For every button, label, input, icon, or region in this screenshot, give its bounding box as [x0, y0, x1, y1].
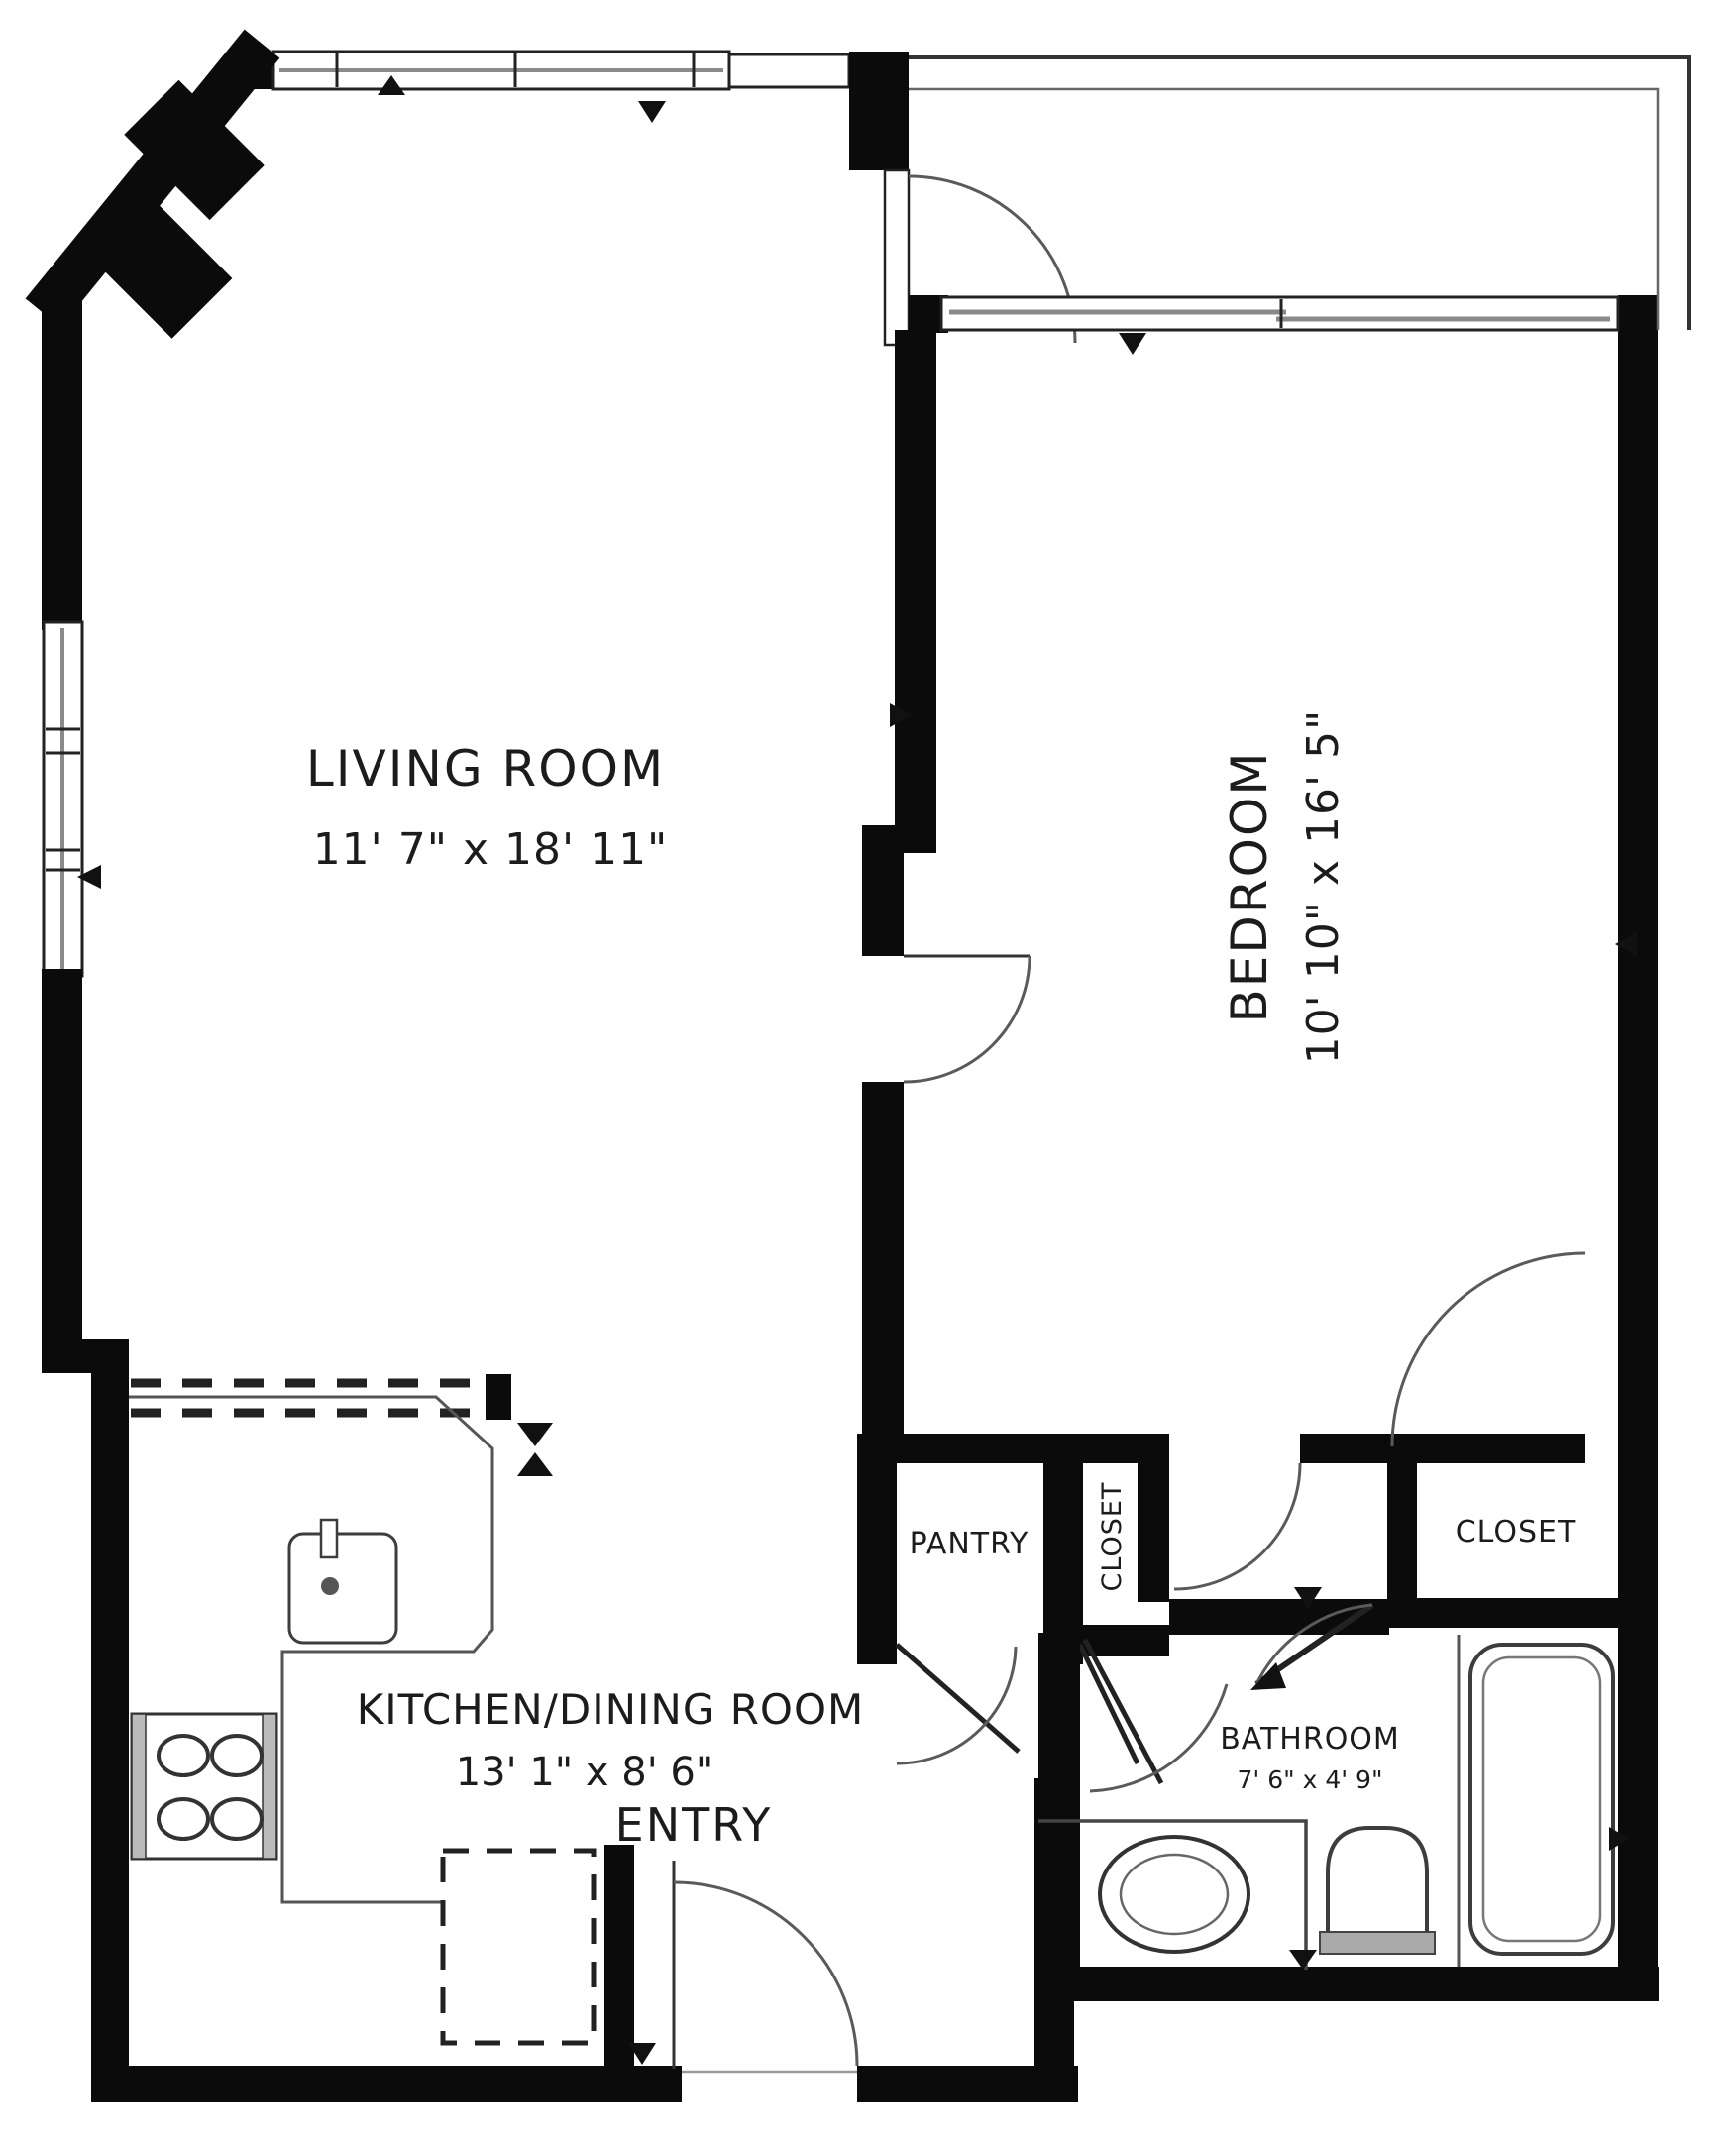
- closet-hall-label: CLOSET: [1097, 1482, 1128, 1592]
- left-window: [44, 622, 82, 976]
- wall-left-lower: [42, 969, 82, 1347]
- stove-rail: [263, 1714, 276, 1859]
- stove-rail: [132, 1714, 146, 1859]
- burner-icon: [159, 1799, 208, 1839]
- balcony-door-leaf: [885, 170, 909, 345]
- stove: [132, 1714, 276, 1859]
- wall-right: [1618, 295, 1658, 2001]
- wall-bath-left: [1038, 1633, 1080, 1970]
- toilet-base: [1320, 1932, 1435, 1954]
- wall-divider-upper: [895, 330, 936, 825]
- faucet-icon: [321, 1520, 337, 1557]
- wall-seg: [857, 1434, 1169, 1463]
- bathroom-dims: 7' 6" x 4' 9": [1238, 1765, 1383, 1794]
- burner-icon: [212, 1736, 262, 1775]
- wall-divider-jog: [862, 825, 936, 853]
- floor-plan-canvas: LIVING ROOM 11' 7" x 18' 11" BEDROOM 10'…: [0, 0, 1736, 2136]
- wall-entry-stub: [604, 1845, 634, 2102]
- wall-closet2-bottom: [1387, 1598, 1658, 1628]
- cabinet-end-post: [486, 1374, 511, 1420]
- bathroom-label: BATHROOM: [1220, 1722, 1400, 1757]
- burner-icon: [212, 1799, 262, 1839]
- living-room-label: LIVING ROOM: [306, 740, 665, 798]
- wall-seg: [1300, 1434, 1585, 1463]
- wall-divider-lower: [862, 1082, 904, 1437]
- bathtub: [1470, 1645, 1613, 1954]
- wall-divider-mid: [862, 853, 904, 956]
- wall-top-plain-band: [729, 54, 849, 87]
- wall-closet1-bottom: [1083, 1625, 1169, 1656]
- wall-left-upper: [42, 285, 82, 630]
- wall-closet1-right: [1138, 1463, 1169, 1602]
- stove-body: [132, 1714, 276, 1859]
- bedroom-top-wall: [909, 295, 1618, 333]
- wall-left-bottom: [91, 1367, 129, 2102]
- toilet: [1328, 1828, 1427, 1940]
- wall-bath-bottom: [1034, 1967, 1659, 2001]
- kitchen-label: KITCHEN/DINING ROOM: [357, 1685, 865, 1734]
- top-window: [273, 52, 729, 89]
- wall-bottom-left: [91, 2066, 682, 2102]
- floor-plan: LIVING ROOM 11' 7" x 18' 11" BEDROOM 10'…: [0, 0, 1736, 2136]
- sink-drain-icon: [321, 1577, 339, 1595]
- bedroom-label: BEDROOM: [1221, 751, 1278, 1023]
- burner-icon: [159, 1736, 208, 1775]
- closet-bedroom-label: CLOSET: [1456, 1515, 1577, 1549]
- closet-hall-label-group: CLOSET: [1097, 1482, 1128, 1592]
- bedroom-dims: 10' 10" x 16' 5": [1298, 709, 1349, 1065]
- wall-balcony-post: [849, 52, 909, 170]
- kitchen-sink: [289, 1534, 396, 1643]
- kitchen-dims: 13' 1" x 8' 6": [456, 1750, 714, 1795]
- living-room-dims: 11' 7" x 18' 11": [313, 824, 669, 875]
- wall-pantry-left: [857, 1434, 897, 1664]
- entry-label: ENTRY: [615, 1798, 773, 1852]
- pantry-label: PANTRY: [910, 1527, 1030, 1561]
